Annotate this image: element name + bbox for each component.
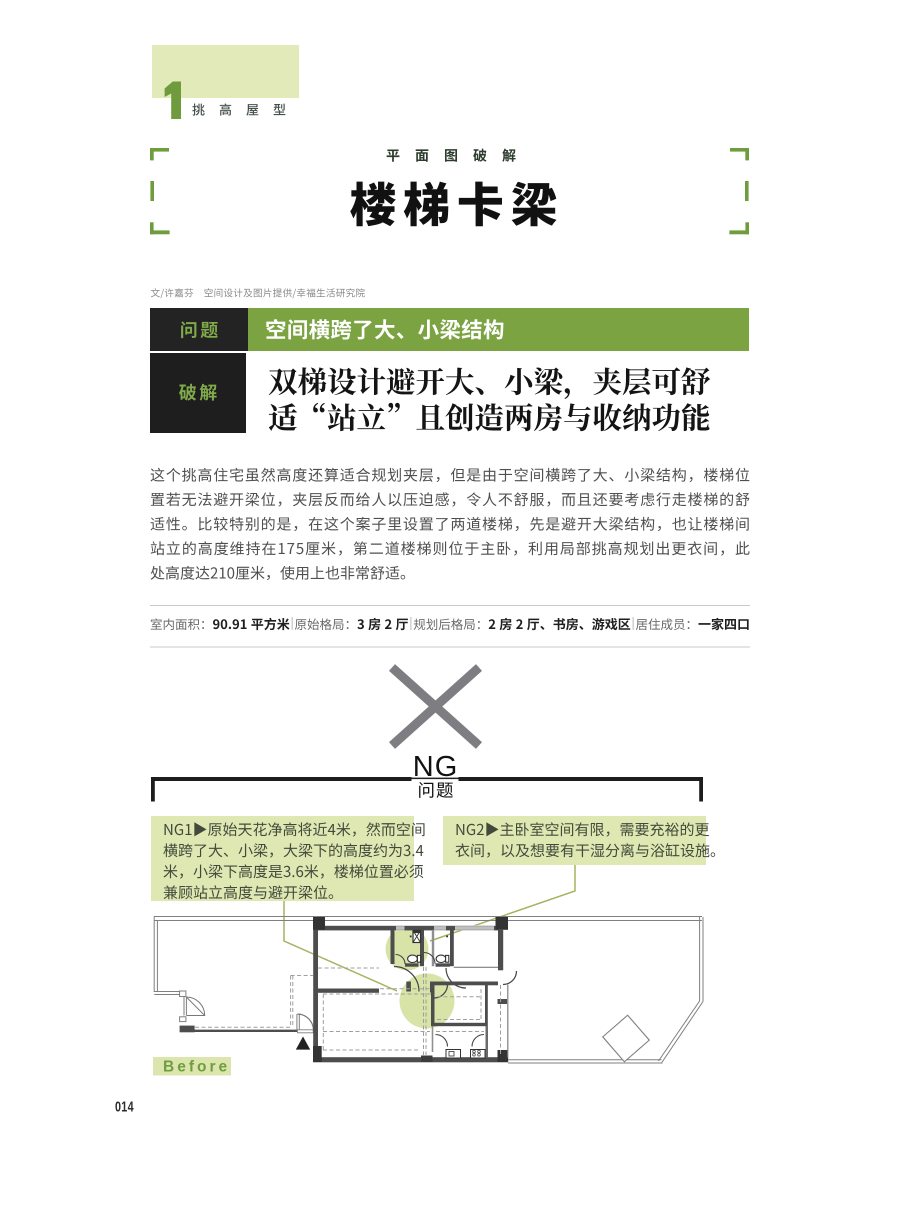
svg-text:014: 014 xyxy=(115,1098,134,1115)
svg-text:Before: Before xyxy=(163,1059,230,1076)
